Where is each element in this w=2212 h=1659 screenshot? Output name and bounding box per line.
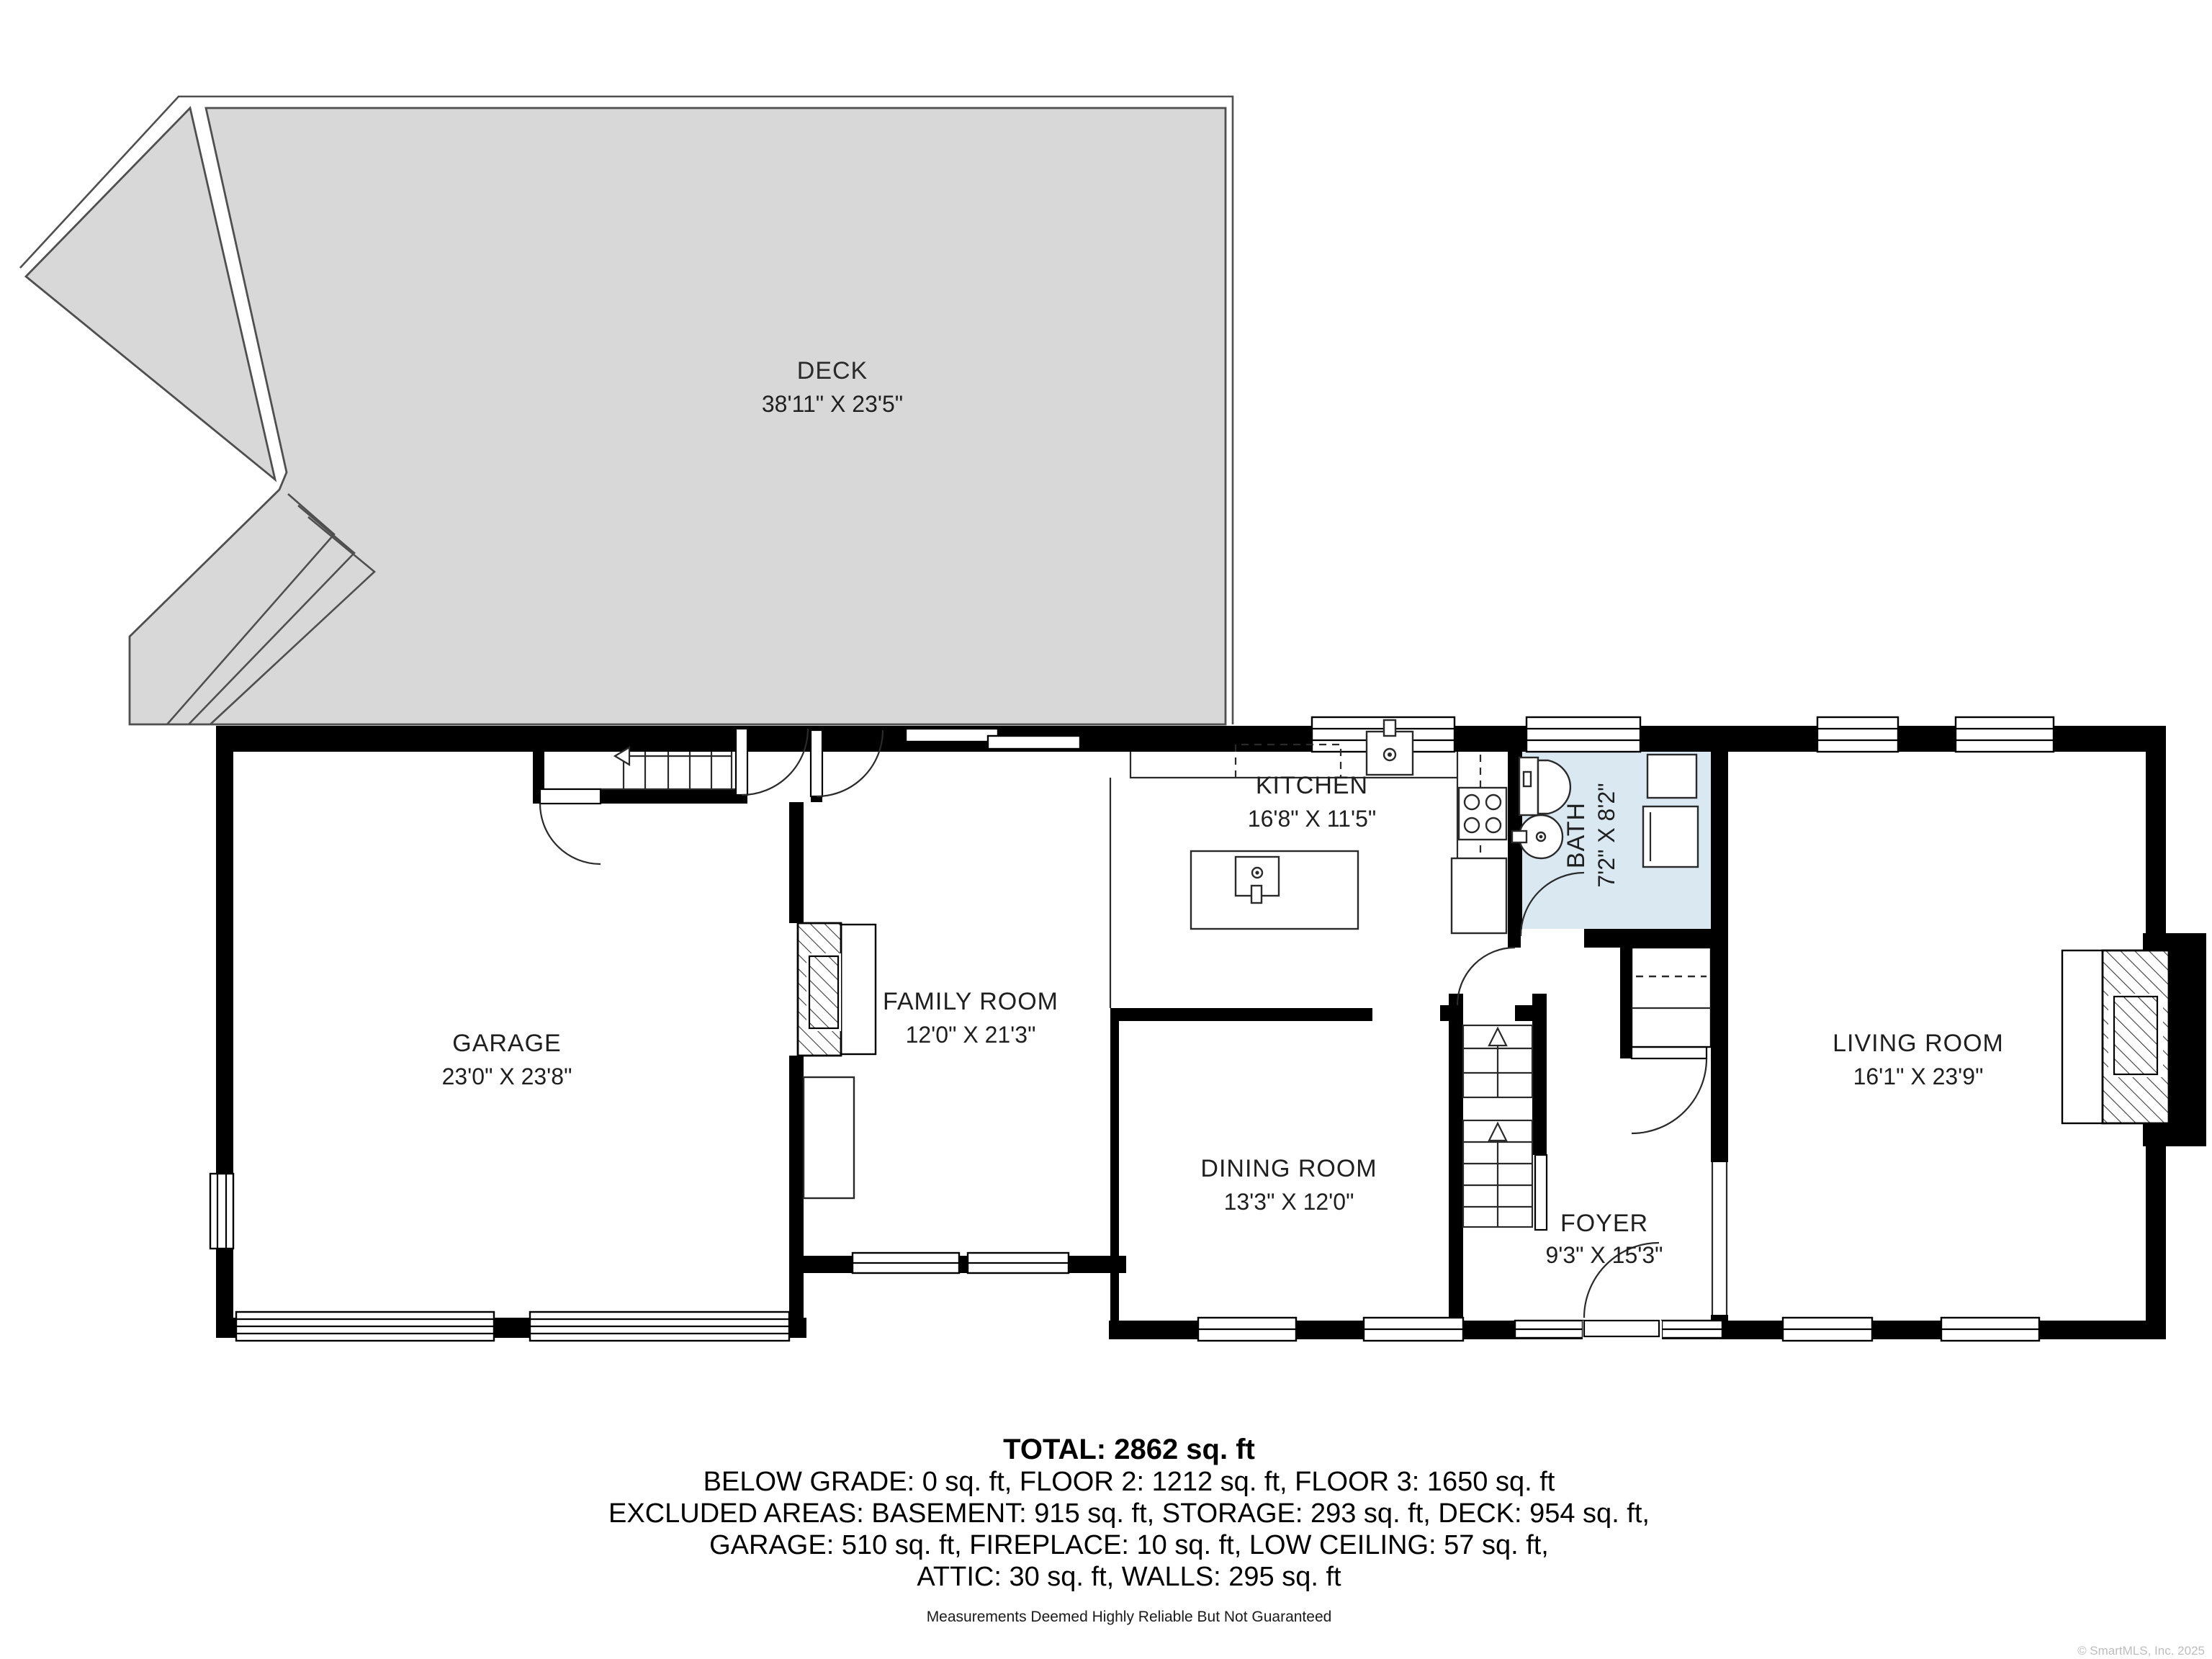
deck-dims: 38'11" X 23'5" bbox=[762, 391, 903, 417]
summary-line-4: ATTIC: 30 sq. ft, WALLS: 295 sq. ft bbox=[917, 1562, 1341, 1592]
garage-label: GARAGE bbox=[452, 1030, 561, 1057]
summary-line-3: GARAGE: 510 sq. ft, FIREPLACE: 10 sq. ft… bbox=[709, 1530, 1549, 1560]
garage-stair-door bbox=[540, 789, 601, 864]
living-room-label: LIVING ROOM bbox=[1833, 1030, 2004, 1057]
family-room-builtin bbox=[804, 1077, 854, 1198]
fireplace-family-room bbox=[798, 923, 876, 1198]
living-room-bottom-window-2 bbox=[1941, 1318, 2039, 1341]
kitchen-label: KITCHEN bbox=[1256, 772, 1368, 799]
family-room-bottom-window-2 bbox=[968, 1253, 1069, 1273]
bath-dims: 7'2" X 8'2" bbox=[1593, 783, 1619, 887]
shower bbox=[1643, 806, 1698, 867]
summary-total: TOTAL: 2862 sq. ft bbox=[1003, 1434, 1255, 1465]
base-cabinet bbox=[1452, 858, 1506, 933]
living-room-top-window-2 bbox=[1956, 717, 2054, 752]
living-room-bottom-window-1 bbox=[1783, 1318, 1872, 1341]
dining-bottom-window-2 bbox=[1364, 1318, 1463, 1341]
kitchen-hall-door bbox=[1457, 948, 1515, 1005]
summary-line-1: BELOW GRADE: 0 sq. ft, FLOOR 2: 1212 sq.… bbox=[703, 1467, 1555, 1497]
deck-main-area bbox=[130, 108, 1226, 724]
watermark: © SmartMLS, Inc. 2025 bbox=[2077, 1644, 2205, 1658]
bath-label: BATH bbox=[1563, 802, 1590, 868]
front-door-sidelight-left bbox=[1515, 1321, 1583, 1338]
closet-door bbox=[1632, 1047, 1707, 1133]
foyer-label: FOYER bbox=[1560, 1210, 1648, 1237]
bath-cabinet bbox=[1647, 755, 1696, 798]
fireplace-living-room bbox=[2062, 933, 2206, 1146]
family-room-dims: 12'0" X 21'3" bbox=[906, 1022, 1036, 1048]
stair-rail bbox=[1535, 1155, 1547, 1230]
deck-label: DECK bbox=[797, 357, 868, 385]
stove bbox=[1459, 788, 1506, 840]
kitchen-island bbox=[1191, 851, 1358, 929]
garage-dims: 23'0" X 23'8" bbox=[442, 1064, 572, 1089]
family-room-label: FAMILY ROOM bbox=[883, 988, 1058, 1015]
disclaimer: Measurements Deemed Highly Reliable But … bbox=[927, 1609, 1332, 1625]
dining-room-label: DINING ROOM bbox=[1200, 1155, 1377, 1182]
windows bbox=[210, 717, 2054, 1341]
front-door-sidelight-right bbox=[1662, 1321, 1722, 1338]
floor-plan: DECK 38'11" X 23'5" bbox=[0, 0, 2212, 1659]
garage-door-1 bbox=[236, 1312, 494, 1341]
kitchen-dims: 16'8" X 11'5" bbox=[1248, 806, 1376, 832]
dining-room-dims: 13'3" X 12'0" bbox=[1224, 1189, 1354, 1215]
closet bbox=[1632, 948, 1711, 1047]
family-room-bottom-window-1 bbox=[853, 1253, 959, 1273]
garage-left-window bbox=[210, 1174, 233, 1249]
bath-top-window bbox=[1527, 717, 1640, 752]
garage-stairs bbox=[544, 747, 736, 789]
area-summary: TOTAL: 2862 sq. ft BELOW GRADE: 0 sq. ft… bbox=[608, 1434, 1650, 1625]
dining-bottom-window-1 bbox=[1198, 1318, 1296, 1341]
living-room-dims: 16'1" X 23'9" bbox=[1853, 1064, 1984, 1089]
foyer-dims: 9'3" X 15'3" bbox=[1545, 1242, 1663, 1268]
garage-door-2 bbox=[530, 1312, 789, 1341]
living-room-top-window-1 bbox=[1817, 717, 1898, 752]
summary-line-2: EXCLUDED AREAS: BASEMENT: 915 sq. ft, ST… bbox=[608, 1498, 1650, 1529]
deck: DECK 38'11" X 23'5" bbox=[20, 96, 1233, 724]
